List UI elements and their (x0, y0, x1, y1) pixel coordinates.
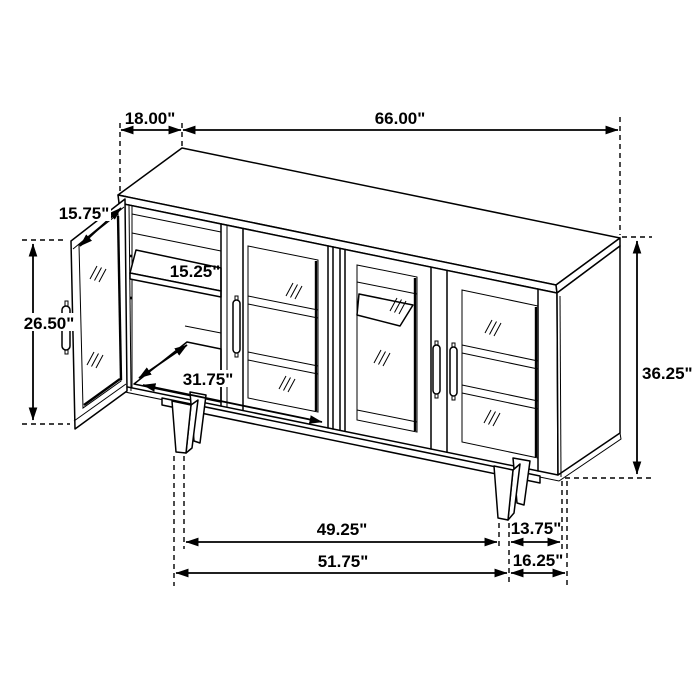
dim-label-door-height: 26.50" (24, 314, 75, 333)
dim-label-top-depth: 18.00" (125, 109, 176, 128)
dim-label-top-width: 66.00" (375, 109, 426, 128)
door-3-handle (433, 341, 440, 398)
door-4-handle (450, 343, 457, 400)
door-2-handle (233, 296, 240, 357)
dim-label-shelf-depth: 15.25" (170, 262, 221, 281)
dim-label-door-width: 15.75" (59, 204, 110, 223)
dim-label-legs-inner-span: 49.25" (317, 520, 368, 539)
dim-label-interior-width: 31.75" (183, 370, 234, 389)
dim-label-cabinet-height: 36.25" (642, 364, 693, 383)
dim-label-legs-outer-span: 51.75" (318, 552, 369, 571)
dim-label-base-side-depth: 16.25" (513, 551, 564, 570)
furniture-dimension-diagram: 18.00" 66.00" 15.75" 26.50" 15.25" 31.75… (0, 0, 700, 700)
dim-label-leg-side-inset: 13.75" (511, 519, 562, 538)
